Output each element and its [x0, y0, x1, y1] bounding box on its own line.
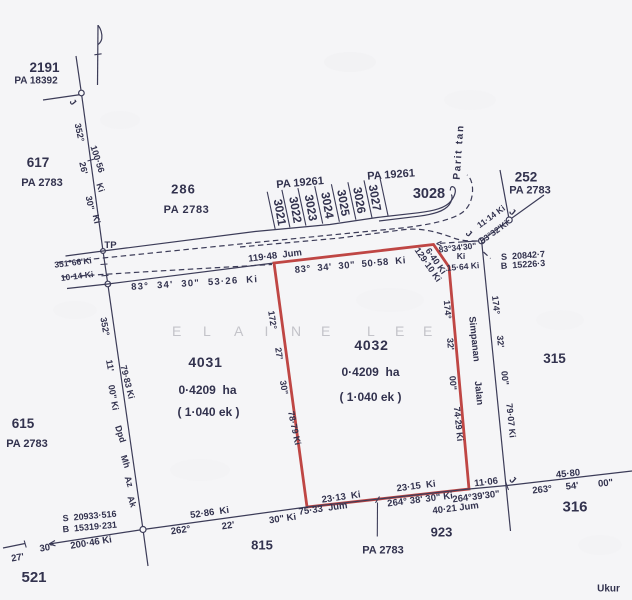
svg-text:923: 923: [431, 525, 453, 540]
svg-text:32': 32': [495, 335, 506, 348]
svg-text:00": 00": [447, 375, 458, 390]
svg-text:22': 22': [221, 520, 235, 533]
svg-text:0·4209 ha: 0·4209 ha: [341, 365, 399, 379]
svg-text:815: 815: [251, 538, 273, 553]
svg-text:27': 27': [10, 552, 24, 565]
svg-text:3028: 3028: [413, 186, 445, 202]
svg-text:Ki: Ki: [457, 251, 466, 261]
svg-text:PA 2783: PA 2783: [164, 204, 210, 216]
svg-text:54': 54': [565, 480, 579, 492]
svg-text:521: 521: [21, 569, 46, 586]
svg-text:174°: 174°: [490, 295, 502, 315]
svg-text:30": 30": [39, 541, 56, 554]
svg-text:617: 617: [27, 155, 50, 170]
svg-text:PA 2783: PA 2783: [6, 438, 48, 450]
svg-text:PA 2783: PA 2783: [362, 545, 404, 557]
svg-text:Ukur: Ukur: [597, 584, 620, 595]
svg-text:286: 286: [171, 182, 196, 197]
svg-text:L: L: [203, 323, 211, 339]
svg-text:N: N: [291, 323, 301, 339]
svg-text:E: E: [321, 323, 330, 339]
svg-text:11': 11': [104, 359, 116, 372]
svg-text:32': 32': [445, 338, 456, 351]
svg-text:4032: 4032: [354, 337, 388, 353]
svg-text:0·4209 ha: 0·4209 ha: [178, 383, 236, 397]
svg-text:252: 252: [515, 170, 538, 185]
svg-text:PA 2783: PA 2783: [509, 185, 551, 197]
svg-text:E: E: [395, 323, 404, 339]
svg-text:00": 00": [499, 370, 510, 385]
svg-text:( 1·040 ek ): ( 1·040 ek ): [339, 390, 401, 404]
svg-text:4031: 4031: [188, 354, 222, 370]
svg-text:00": 00": [598, 477, 614, 490]
svg-text:E: E: [423, 323, 432, 339]
svg-text:27': 27': [273, 347, 285, 361]
svg-text:( 1·040 ek ): ( 1·040 ek ): [177, 405, 239, 419]
svg-text:PA 18392: PA 18392: [14, 76, 58, 87]
svg-text:I: I: [265, 323, 269, 339]
svg-text:263°: 263°: [532, 483, 553, 496]
svg-text:2191: 2191: [29, 60, 60, 75]
svg-text:174°: 174°: [442, 300, 454, 320]
svg-text:315: 315: [543, 351, 566, 366]
svg-text:615: 615: [12, 416, 35, 431]
svg-text:TP: TP: [104, 240, 117, 251]
svg-text:316: 316: [562, 499, 587, 516]
svg-text:PA 2783: PA 2783: [21, 177, 63, 189]
svg-text:A: A: [234, 323, 244, 339]
svg-text:E: E: [172, 323, 181, 339]
